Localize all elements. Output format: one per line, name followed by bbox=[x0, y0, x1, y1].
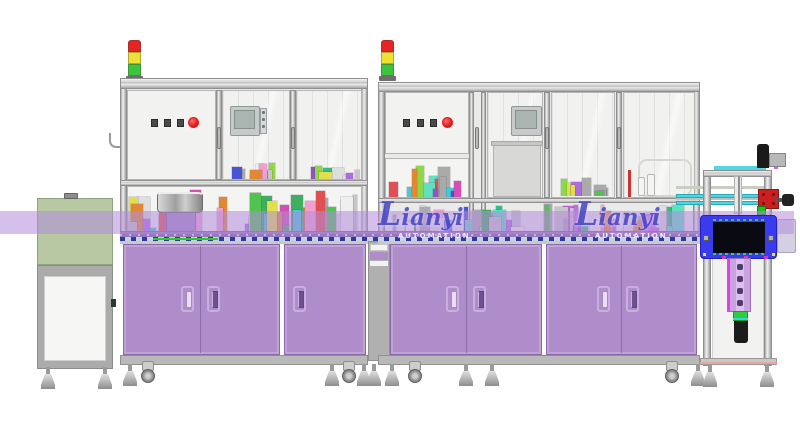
handle-slot bbox=[298, 291, 304, 308]
hmi-button-dot bbox=[262, 111, 265, 114]
panel-button-2[interactable] bbox=[164, 119, 171, 127]
cabinet-door-handle[interactable] bbox=[626, 286, 639, 312]
machine2-door-handle-1[interactable] bbox=[475, 127, 479, 149]
machinery-part bbox=[232, 167, 241, 179]
handle-slot bbox=[186, 291, 192, 308]
machinery-part bbox=[440, 177, 446, 197]
leveling-foot bbox=[97, 367, 113, 389]
panel-button-2[interactable] bbox=[417, 119, 424, 127]
m2-lower-strip bbox=[384, 203, 696, 233]
handle-slot bbox=[478, 291, 484, 308]
machinery-part bbox=[545, 205, 549, 233]
machine1-door-handle-1[interactable] bbox=[217, 127, 221, 149]
leveling-foot bbox=[366, 364, 382, 386]
column-hole bbox=[737, 264, 743, 270]
cabinet-door-handle[interactable] bbox=[473, 286, 486, 312]
assembly-line-scene: Lianyi AUTOMATION Lianyi AUTOMATION bbox=[0, 0, 800, 438]
station-blue-unit bbox=[700, 215, 777, 259]
machinery-part bbox=[582, 178, 591, 196]
equipment-box bbox=[493, 144, 541, 197]
reagent-tube bbox=[628, 170, 631, 197]
machinery-part bbox=[327, 207, 336, 233]
cabinet-door-handle[interactable] bbox=[597, 286, 610, 312]
machinery-part bbox=[561, 179, 566, 196]
bottle bbox=[638, 177, 645, 196]
magenta-dot bbox=[764, 256, 768, 259]
machinery-part bbox=[412, 169, 417, 197]
emergency-stop-button[interactable] bbox=[442, 117, 453, 128]
machinery-part bbox=[267, 201, 277, 233]
machine1-door-handle-2[interactable] bbox=[291, 127, 295, 149]
bowl-feeder bbox=[157, 192, 203, 213]
caster-wheel bbox=[139, 361, 157, 386]
machine1-control-panel-window bbox=[127, 90, 216, 180]
stack-light-base bbox=[379, 76, 396, 81]
station-motor bbox=[757, 144, 769, 168]
machinery-part bbox=[250, 193, 261, 233]
machine1-post-left bbox=[120, 88, 127, 238]
blue-unit-opening bbox=[713, 222, 765, 253]
machine1-top-beam bbox=[120, 78, 368, 89]
panel-button-3[interactable] bbox=[177, 119, 184, 127]
cabinet-door-handle[interactable] bbox=[207, 286, 220, 312]
leveling-foot bbox=[484, 364, 500, 386]
machinery-part bbox=[305, 201, 317, 233]
machinery-part bbox=[293, 210, 300, 233]
bowl-feeder-base bbox=[166, 211, 196, 232]
cabinet-door-handle[interactable] bbox=[181, 286, 194, 312]
handle-slot bbox=[451, 291, 457, 308]
left-machine-hood bbox=[37, 198, 113, 265]
machinery-part bbox=[601, 205, 605, 233]
yellow-dot bbox=[772, 253, 775, 256]
leveling-foot bbox=[759, 365, 775, 387]
machinery-part bbox=[389, 182, 397, 197]
stack-light-green bbox=[128, 64, 141, 76]
leveling-foot bbox=[324, 364, 340, 386]
left-machine-cabinet-panel bbox=[44, 276, 106, 361]
caster-wheel bbox=[663, 361, 681, 386]
machine2-control-panel-window bbox=[385, 92, 469, 154]
bottle bbox=[647, 174, 655, 196]
door-split bbox=[200, 246, 201, 353]
connector-stripe-white-1 bbox=[370, 244, 388, 251]
station-green-block bbox=[757, 206, 766, 215]
blue-unit-latch-left[interactable] bbox=[703, 235, 709, 241]
coupling-bolt bbox=[762, 202, 765, 205]
station-base-pink-line bbox=[700, 362, 777, 364]
panel-button-1[interactable] bbox=[403, 119, 410, 127]
machine1-post-right bbox=[361, 88, 368, 238]
station-post-left bbox=[703, 170, 711, 366]
door-split bbox=[621, 246, 622, 353]
machinery-part bbox=[217, 208, 223, 233]
caster-wheel bbox=[406, 361, 424, 386]
machinery-part bbox=[332, 168, 344, 179]
column-hole bbox=[737, 288, 743, 294]
machine2-window-2 bbox=[487, 92, 543, 198]
handwheel-knob[interactable] bbox=[782, 194, 794, 206]
machine2-base bbox=[378, 355, 700, 365]
machine2-window-4 bbox=[623, 92, 695, 198]
machinery-part bbox=[268, 170, 273, 179]
machinery-part bbox=[659, 206, 666, 233]
station-slider-rod bbox=[738, 176, 740, 216]
machinery-part bbox=[346, 173, 353, 179]
machine2-stack-light bbox=[379, 40, 396, 82]
station-hopper bbox=[777, 219, 796, 253]
machinery-part bbox=[341, 197, 353, 233]
hmi-screen bbox=[515, 110, 537, 129]
emergency-stop-button[interactable] bbox=[188, 117, 199, 128]
machinery-part bbox=[407, 187, 412, 197]
m1-w3-strip bbox=[300, 164, 360, 179]
machinery-part bbox=[595, 191, 603, 196]
stack-light-green bbox=[381, 64, 394, 76]
blue-unit-green-dashes-bottom bbox=[713, 253, 765, 255]
leveling-foot bbox=[702, 365, 718, 387]
machinery-part bbox=[451, 191, 454, 197]
cabinet-door-handle[interactable] bbox=[446, 286, 459, 312]
handle-slot bbox=[212, 291, 218, 308]
yellow-dot bbox=[703, 253, 706, 256]
column-hole bbox=[737, 300, 743, 306]
machine1-cabinet-doors-a[interactable] bbox=[123, 244, 280, 355]
machinery-part bbox=[672, 205, 685, 233]
stack-light-red bbox=[381, 40, 394, 52]
station-gripper-column bbox=[727, 258, 751, 312]
magenta-dot bbox=[722, 256, 726, 259]
machine1-stack-light bbox=[126, 40, 143, 82]
machinery-part bbox=[353, 195, 357, 233]
panel-button-3[interactable] bbox=[430, 119, 437, 127]
leveling-foot bbox=[122, 364, 138, 386]
cabinet-door-handle[interactable] bbox=[293, 286, 306, 312]
column-hole bbox=[737, 276, 743, 282]
station-nozzle-cylinder bbox=[734, 321, 748, 343]
conveyor-green-line bbox=[153, 238, 218, 240]
m2-w3-strip bbox=[554, 176, 612, 196]
leveling-foot bbox=[458, 364, 474, 386]
left-machine-latch bbox=[111, 299, 116, 307]
machinery-part bbox=[316, 191, 325, 233]
machinery-part bbox=[355, 170, 359, 179]
machinery-part bbox=[433, 189, 438, 197]
panel-button-1[interactable] bbox=[151, 119, 158, 127]
machine2-door-handle-2[interactable] bbox=[545, 127, 549, 149]
coupling-bolt bbox=[762, 193, 765, 196]
leveling-foot bbox=[384, 364, 400, 386]
handle-slot bbox=[602, 291, 608, 308]
equipment-box-lid bbox=[491, 141, 543, 146]
stack-light-yellow bbox=[381, 52, 394, 64]
machinery-part bbox=[571, 185, 575, 196]
m2-subpanel-strip bbox=[386, 160, 466, 197]
connector-stripe-purple bbox=[370, 252, 388, 260]
m1-w2-strip bbox=[229, 161, 287, 179]
machine2-top-beam bbox=[378, 82, 700, 92]
machinery-part bbox=[319, 172, 331, 179]
coupling-bolt bbox=[772, 202, 775, 205]
blue-unit-green-dashes-top bbox=[713, 219, 765, 221]
machine2-door-handle-3[interactable] bbox=[617, 127, 621, 149]
machinery-part bbox=[250, 170, 262, 179]
stack-light-yellow bbox=[128, 52, 141, 64]
leveling-foot bbox=[40, 367, 56, 389]
left-machine-hood-knob bbox=[64, 193, 78, 199]
machinery-part bbox=[574, 205, 578, 233]
connector-stripe-white-2 bbox=[370, 261, 388, 266]
door-split bbox=[466, 246, 467, 353]
station-cyan-line bbox=[733, 318, 748, 320]
handle-slot bbox=[631, 291, 637, 308]
station-motor-bracket bbox=[769, 153, 786, 167]
blue-unit-latch-right[interactable] bbox=[768, 235, 774, 241]
machinery-part bbox=[454, 181, 461, 197]
hmi-screen bbox=[234, 110, 255, 129]
stack-light-red bbox=[128, 40, 141, 52]
hmi-button-dot bbox=[262, 118, 265, 121]
coupling-bolt bbox=[772, 193, 775, 196]
hmi-button-dot bbox=[262, 125, 265, 128]
